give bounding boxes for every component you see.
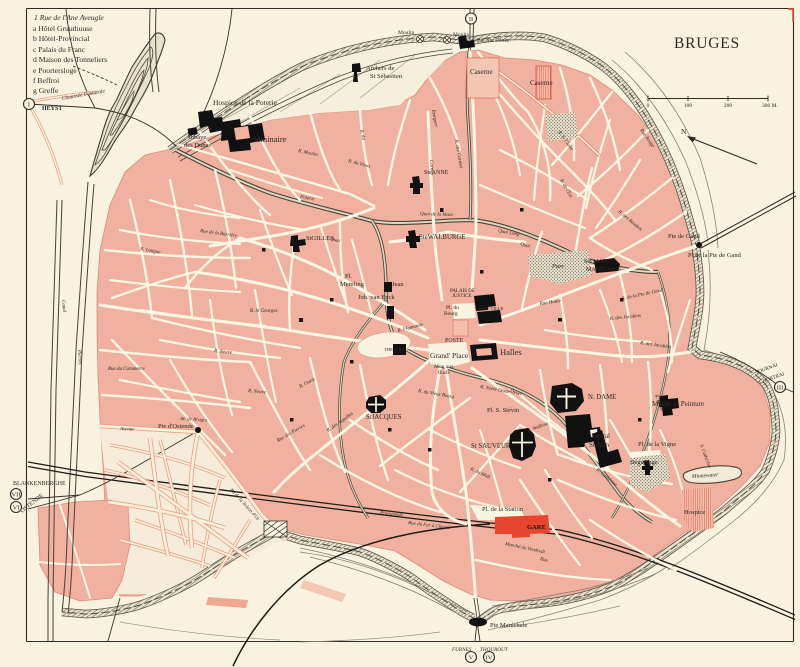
- svg-text:Caserne: Caserne: [530, 79, 553, 87]
- svg-text:VI: VI: [13, 505, 20, 512]
- svg-text:N. DAME: N. DAME: [588, 394, 616, 401]
- svg-text:V: V: [469, 655, 474, 662]
- svg-text:St Sébastien: St Sébastien: [370, 73, 403, 80]
- svg-text:200: 200: [724, 103, 733, 109]
- svg-text:Avenue: Avenue: [119, 427, 135, 433]
- svg-text:MADELEINE: MADELEINE: [586, 267, 621, 273]
- svg-text:des Dunes: des Dunes: [184, 142, 211, 149]
- svg-text:POSTE: POSTE: [445, 338, 464, 344]
- svg-text:HEYST: HEYST: [42, 106, 62, 112]
- svg-text:BLANKENBERGHE: BLANKENBERGHE: [13, 481, 66, 487]
- svg-text:FURNES: FURNES: [451, 647, 472, 653]
- svg-text:StJACQUES: StJACQUES: [366, 414, 402, 421]
- svg-text:g Greffe: g Greffe: [33, 86, 59, 95]
- svg-text:Grand' Place: Grand' Place: [430, 351, 469, 360]
- svg-text:f Beffroi: f Beffroi: [33, 76, 59, 85]
- svg-text:Pte Ste Croix: Pte Ste Croix: [477, 38, 509, 44]
- svg-text:Jean: Jean: [392, 281, 404, 288]
- svg-text:GARE: GARE: [527, 524, 546, 531]
- svg-text:Pte Maréchale: Pte Maréchale: [490, 622, 527, 629]
- svg-text:b Hôtel-Provincial: b Hôtel-Provincial: [33, 34, 89, 43]
- svg-text:Pte de Gand: Pte de Gand: [668, 233, 701, 240]
- svg-text:SteWALBURGE: SteWALBURGE: [419, 234, 465, 241]
- svg-text:Archers de: Archers de: [366, 65, 394, 72]
- svg-text:SteANNE: SteANNE: [424, 170, 449, 176]
- svg-text:Hôpital: Hôpital: [589, 432, 610, 440]
- svg-text:H.DE VILLE: H.DE VILLE: [479, 306, 504, 311]
- svg-text:Caserne: Caserne: [470, 68, 493, 76]
- svg-text:St SAUVEUR: St SAUVEUR: [471, 443, 511, 450]
- svg-text:JUSTICE: JUSTICE: [452, 294, 471, 299]
- svg-text:a Hôtel Gruuthuuse: a Hôtel Gruuthuuse: [33, 24, 93, 33]
- svg-text:Pierres: Pierres: [76, 349, 82, 365]
- svg-text:Pl.: Pl.: [345, 273, 352, 280]
- svg-text:THOUROUT: THOUROUT: [480, 647, 509, 653]
- svg-text:VII: VII: [11, 492, 20, 499]
- svg-text:Ste MARIE: Ste MARIE: [584, 259, 613, 265]
- svg-text:Béguinage: Béguinage: [630, 459, 658, 466]
- svg-text:Halles: Halles: [500, 347, 522, 357]
- svg-text:100: 100: [684, 103, 693, 109]
- svg-text:Memling: Memling: [340, 281, 365, 288]
- svg-text:Hospice: Hospice: [684, 509, 705, 516]
- svg-text:Hospice de la Poterie: Hospice de la Poterie: [213, 98, 278, 107]
- svg-text:Parc: Parc: [551, 263, 565, 270]
- svg-text:R. St Georges: R. St Georges: [249, 309, 278, 314]
- svg-text:I: I: [28, 102, 30, 109]
- svg-text:d Maison des Tonneliers: d Maison des Tonneliers: [33, 55, 107, 64]
- svg-text:Pl.de la Pte de Gand: Pl.de la Pte de Gand: [688, 252, 742, 259]
- svg-text:Rue du Commerce: Rue du Commerce: [107, 367, 146, 372]
- svg-text:300 M.: 300 M.: [762, 103, 779, 109]
- svg-text:Pte d'Ostende: Pte d'Ostende: [158, 423, 194, 430]
- svg-text:Œufs: Œufs: [438, 369, 450, 376]
- svg-text:II: II: [469, 16, 473, 23]
- svg-text:Pl. de la Vigne: Pl. de la Vigne: [638, 441, 676, 448]
- svg-text:Moulin: Moulin: [398, 30, 414, 36]
- svg-text:Pl. S. Stévin: Pl. S. Stévin: [487, 407, 520, 414]
- svg-text:IV: IV: [486, 655, 493, 662]
- svg-text:0: 0: [647, 103, 650, 109]
- svg-text:e Poortersloge: e Poortersloge: [33, 66, 77, 75]
- svg-text:Abbaye: Abbaye: [186, 134, 206, 141]
- svg-text:Séminaire: Séminaire: [252, 134, 287, 144]
- svg-text:Joh. van Eyck: Joh. van Eyck: [358, 294, 395, 301]
- svg-text:c Palais du Franc: c Palais du Franc: [33, 45, 86, 54]
- svg-text:Pl. de la Station: Pl. de la Station: [482, 506, 524, 513]
- svg-text:THEATRE: THEATRE: [384, 347, 405, 352]
- svg-text:St Jean: St Jean: [589, 441, 610, 449]
- svg-text:N: N: [681, 127, 687, 136]
- svg-text:III: III: [777, 385, 784, 392]
- svg-text:1 Rue de l'Ane Aveugle: 1 Rue de l'Ane Aveugle: [34, 13, 104, 22]
- svg-text:BRUGES: BRUGES: [674, 35, 740, 52]
- svg-text:Bourg: Bourg: [444, 311, 458, 317]
- svg-text:Moulin: Moulin: [453, 32, 469, 38]
